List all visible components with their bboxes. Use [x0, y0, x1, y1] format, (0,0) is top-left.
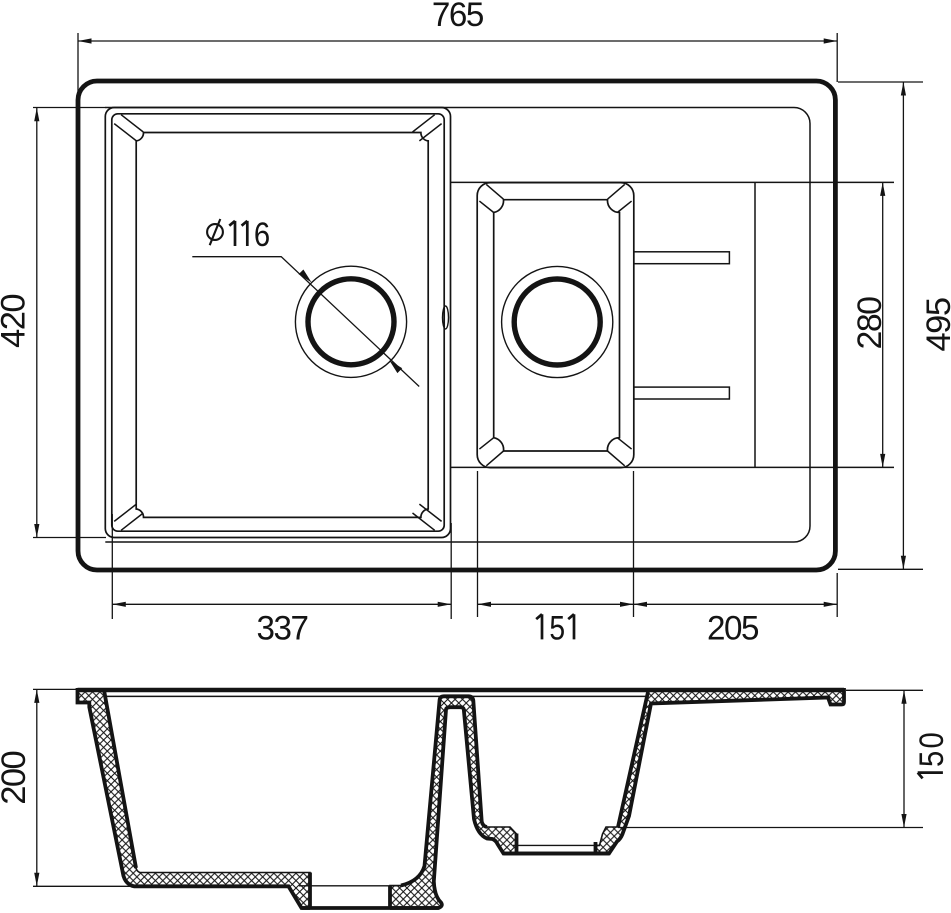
svg-text:765: 765	[432, 0, 484, 34]
svg-text:205: 205	[707, 609, 759, 647]
svg-text:5: 5	[549, 609, 564, 647]
svg-text:337: 337	[257, 609, 309, 647]
svg-text:420: 420	[0, 294, 33, 348]
svg-text:0: 0	[913, 733, 951, 748]
svg-text:200: 200	[0, 751, 33, 805]
svg-text:495: 495	[920, 298, 951, 352]
svg-text:280: 280	[851, 297, 889, 350]
svg-text:6: 6	[254, 216, 269, 254]
svg-text:5: 5	[913, 752, 951, 767]
